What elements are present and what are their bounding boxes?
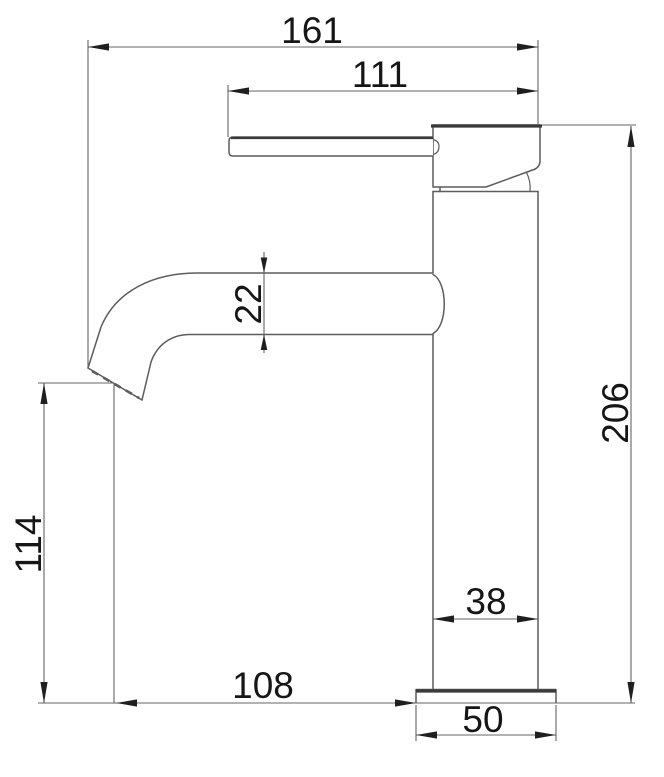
- dimension-label-38: 38: [465, 581, 506, 622]
- arrowhead-left: [88, 43, 109, 50]
- dimension-label-108: 108: [232, 665, 294, 706]
- mixer-head-inner-arc: [526, 172, 530, 192]
- technical-drawing-page: 161 111 22 206 114 108: [0, 0, 664, 777]
- arrowhead-right: [517, 87, 538, 94]
- arrowhead-left: [228, 87, 249, 94]
- arrowhead-left: [433, 615, 454, 622]
- dimension-label-114: 114: [8, 515, 49, 574]
- arrowhead-bottom: [40, 682, 47, 703]
- arrowhead-right: [535, 731, 556, 738]
- arrowhead-top: [40, 383, 47, 404]
- drawing-canvas: 161 111 22 206 114 108: [0, 0, 664, 777]
- spout-body-bulge: [433, 275, 444, 334]
- arrowhead-top: [627, 126, 634, 147]
- dimension-38: 38: [433, 581, 538, 623]
- dimension-50: 50: [416, 699, 556, 741]
- dimension-label-50: 50: [462, 699, 503, 740]
- dimension-108: 108: [38, 383, 635, 707]
- arrowhead-bottom: [261, 335, 268, 351]
- arrowhead-left: [416, 731, 437, 738]
- dimension-206: 206: [542, 125, 636, 703]
- mixer-head-shape: [433, 125, 540, 187]
- arrowhead-right: [517, 615, 538, 622]
- dimension-label-22: 22: [228, 283, 269, 324]
- dimension-22: 22: [228, 252, 269, 353]
- dimension-161: 161: [88, 10, 538, 368]
- dimension-label-161: 161: [281, 10, 343, 51]
- dimension-114: 114: [8, 383, 114, 703]
- arrowhead-top: [261, 258, 268, 274]
- arrowhead-left: [116, 699, 137, 706]
- dimension-label-111: 111: [352, 54, 408, 95]
- handle-lever-shape: [229, 137, 433, 156]
- spout-bottom-edge: [142, 335, 433, 401]
- arrowhead-right: [395, 699, 416, 706]
- arrowhead-right: [517, 43, 538, 50]
- dimension-label-206: 206: [595, 382, 636, 444]
- arrowhead-bottom: [627, 682, 634, 703]
